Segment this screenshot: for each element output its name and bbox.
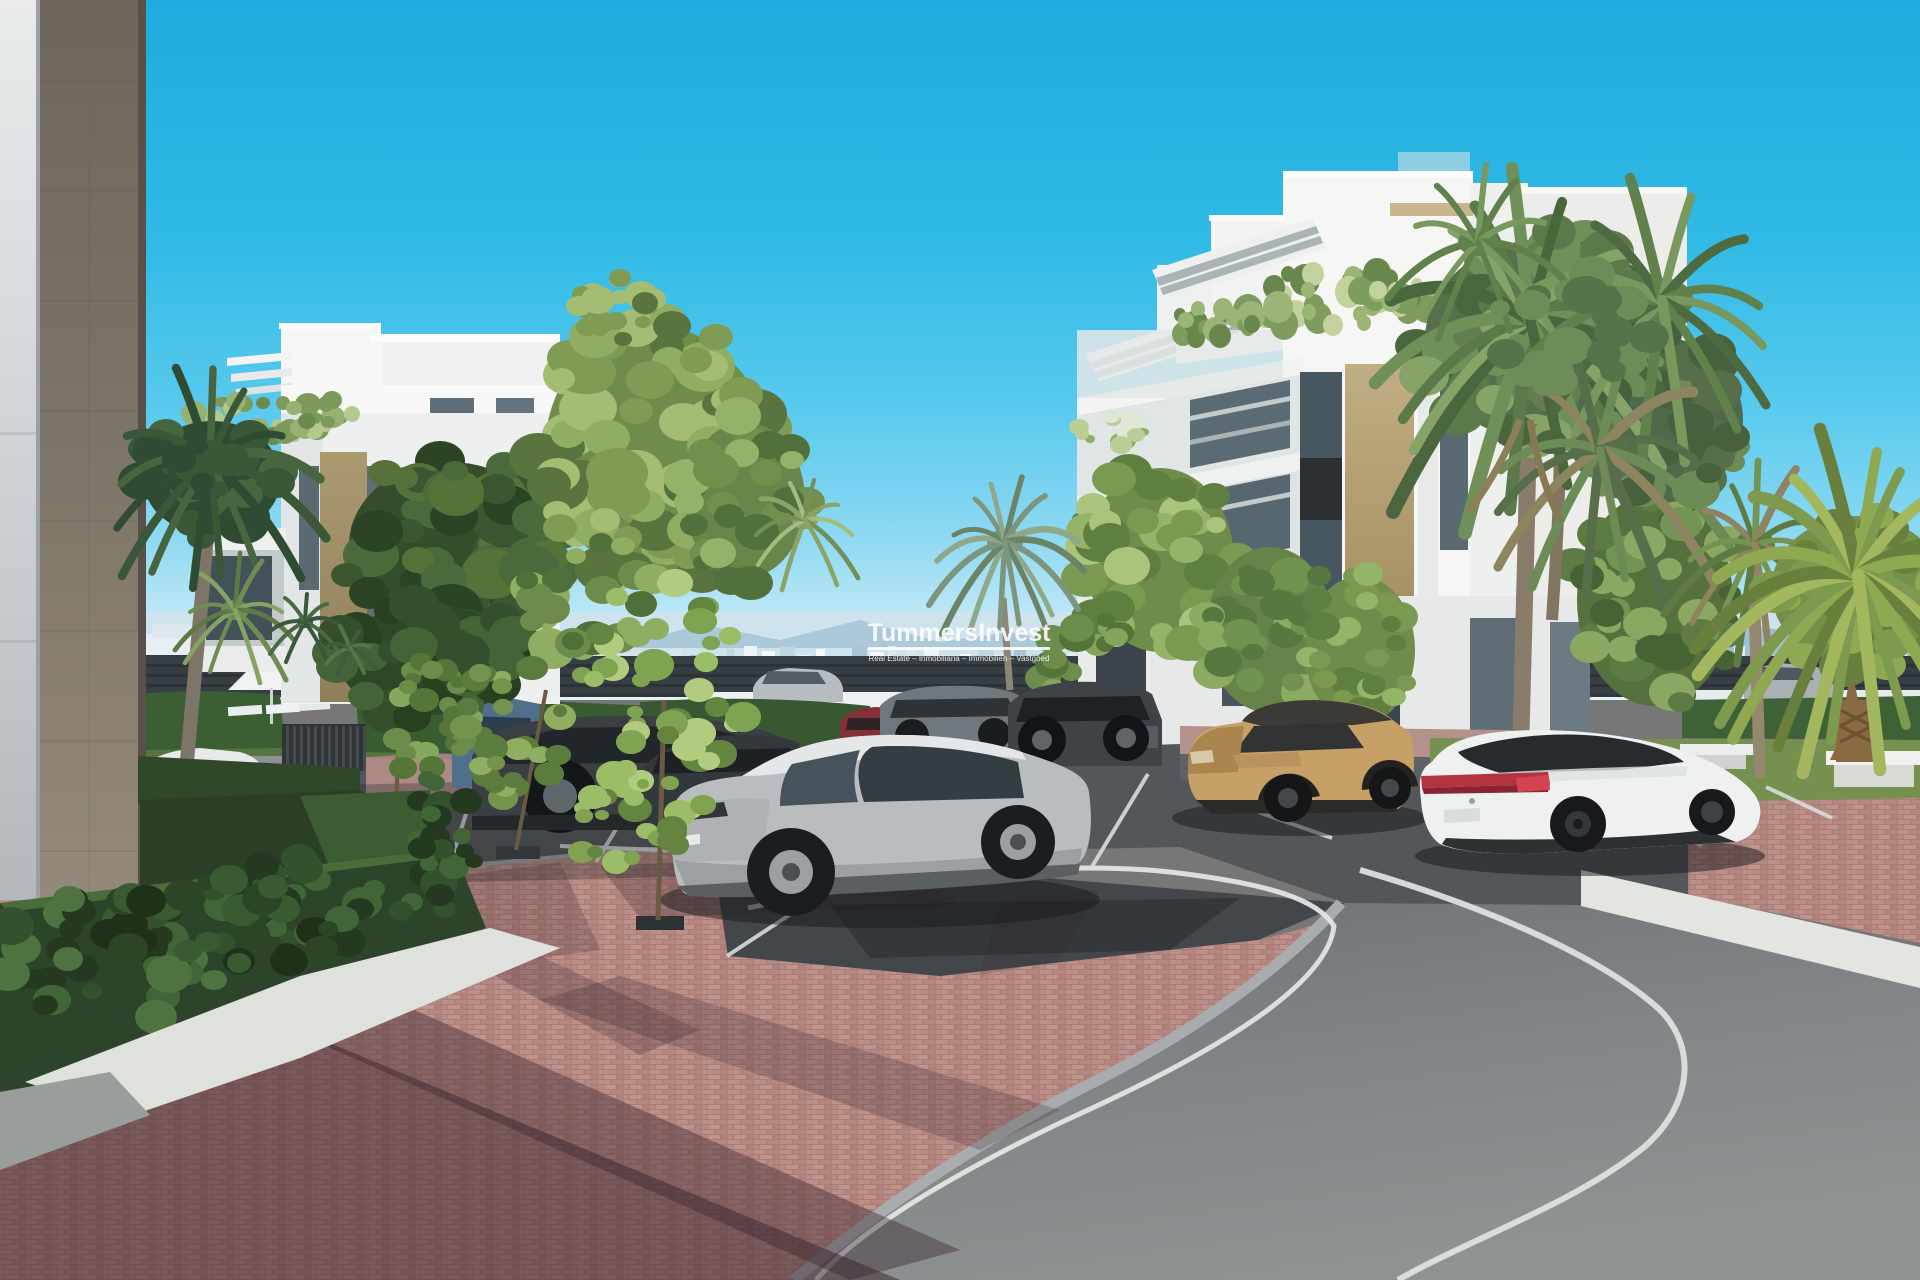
svg-text:TummersInvest: TummersInvest [868,619,1052,647]
svg-text:Real Estate – Inmobiliaria – I: Real Estate – Inmobiliaria – Immobilien … [869,654,1050,663]
